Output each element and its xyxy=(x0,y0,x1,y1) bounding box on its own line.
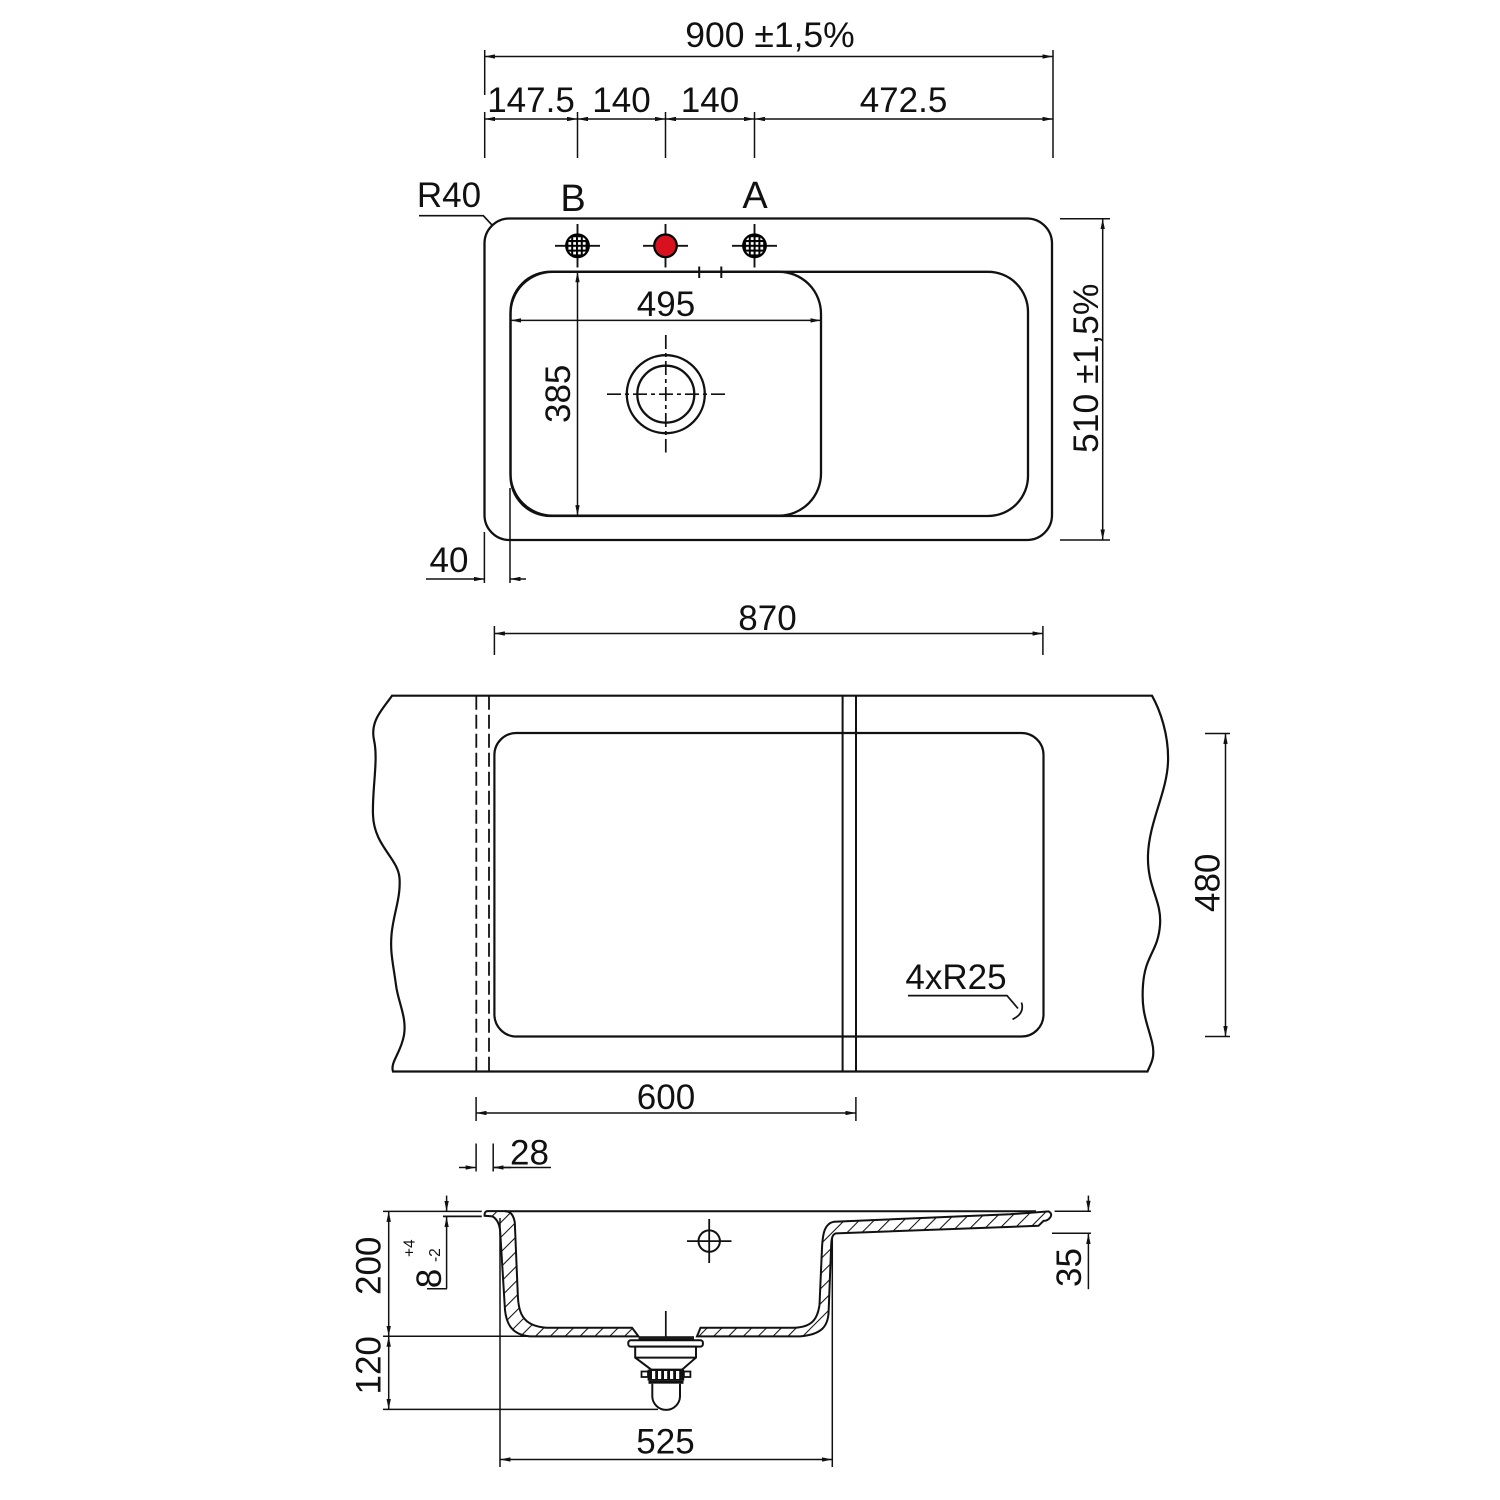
svg-text:472.5: 472.5 xyxy=(860,81,948,120)
svg-text:B: B xyxy=(560,178,585,220)
svg-text:28: 28 xyxy=(510,1134,549,1173)
svg-text:40: 40 xyxy=(430,541,469,580)
svg-text:480: 480 xyxy=(1189,854,1228,912)
svg-text:600: 600 xyxy=(637,1078,695,1117)
svg-text:+4: +4 xyxy=(402,1239,419,1257)
svg-text:200: 200 xyxy=(350,1237,389,1295)
svg-text:120: 120 xyxy=(350,1336,389,1394)
svg-text:495: 495 xyxy=(637,285,695,324)
svg-text:-2: -2 xyxy=(427,1248,444,1262)
svg-text:4xR25: 4xR25 xyxy=(905,958,1006,997)
svg-text:525: 525 xyxy=(636,1423,694,1462)
svg-text:8: 8 xyxy=(410,1269,449,1288)
svg-text:900 ±1,5%: 900 ±1,5% xyxy=(685,15,855,55)
svg-text:140: 140 xyxy=(592,81,650,120)
svg-text:A: A xyxy=(742,175,768,217)
svg-text:140: 140 xyxy=(681,81,739,120)
svg-text:35: 35 xyxy=(1050,1248,1089,1287)
svg-text:510 ±1,5%: 510 ±1,5% xyxy=(1066,284,1106,454)
svg-text:R40: R40 xyxy=(417,176,481,215)
svg-text:870: 870 xyxy=(738,599,796,638)
svg-text:385: 385 xyxy=(539,365,578,423)
svg-text:147.5: 147.5 xyxy=(487,81,575,120)
